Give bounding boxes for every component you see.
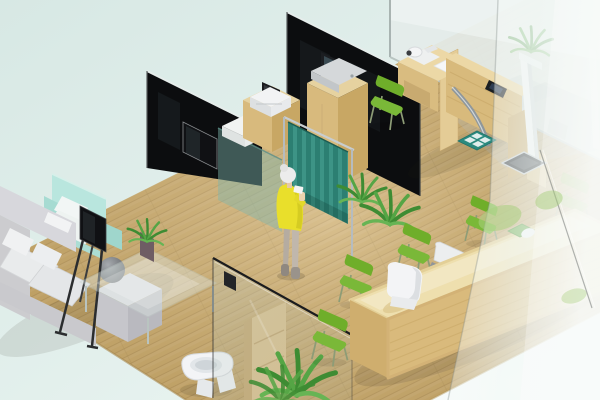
isometric-scene (0, 0, 600, 400)
clinic-interior-render: Isometric 3D rendering of a small clinic… (0, 0, 600, 400)
